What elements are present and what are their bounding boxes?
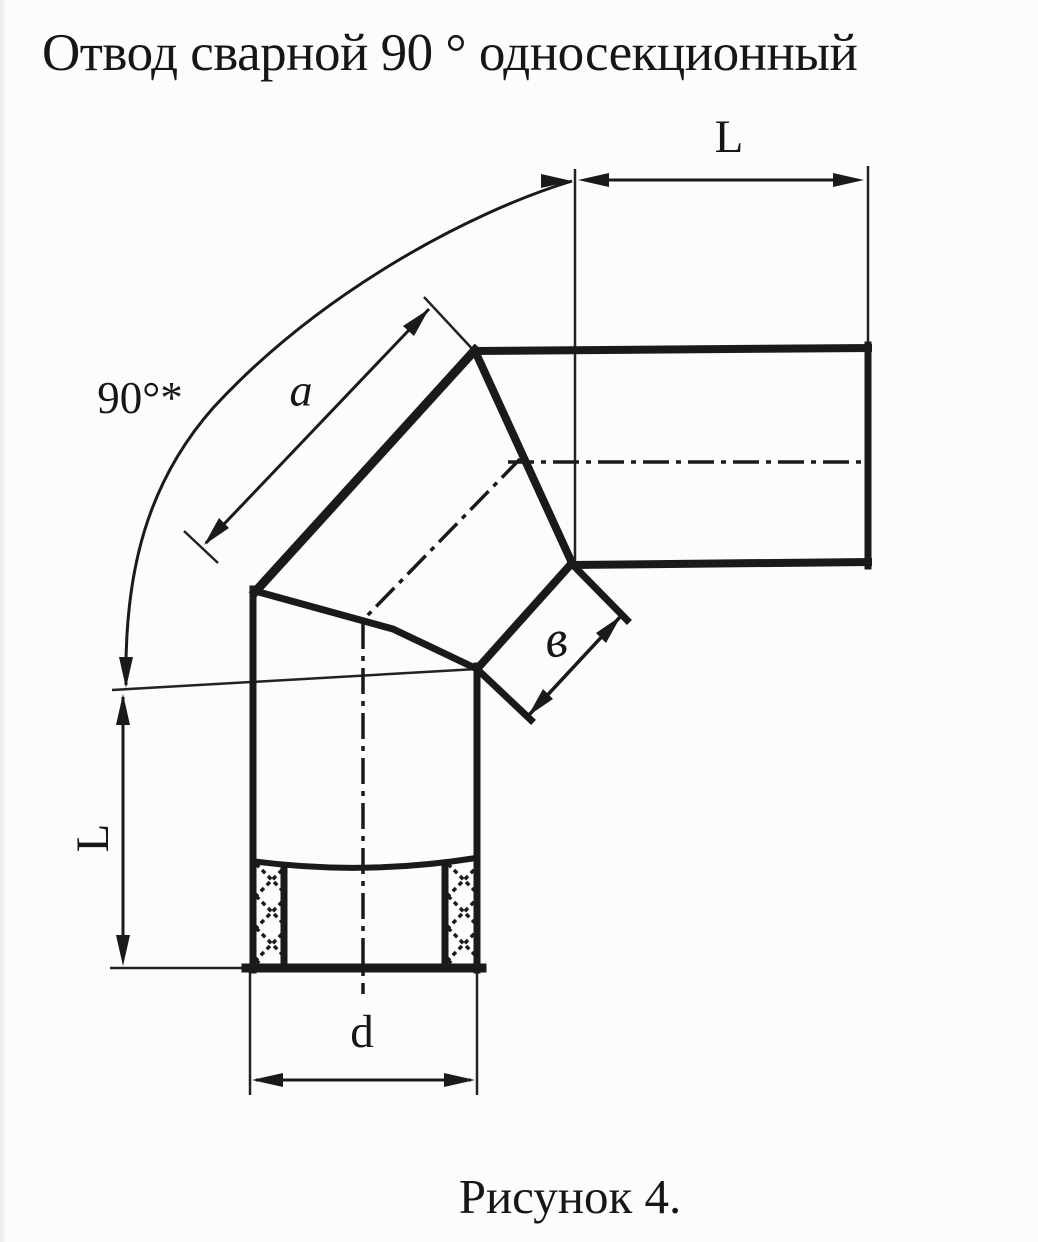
- centerline-diagonal: [362, 459, 520, 621]
- extension-tick-a-upper: [424, 297, 477, 354]
- arrowhead-left: [578, 173, 609, 187]
- arrowhead-top: [116, 694, 130, 725]
- top-pipe-bottom-edge: [571, 562, 868, 565]
- angle-arc: [119, 174, 572, 688]
- dimension-v: [528, 616, 621, 716]
- scanned-figure-page: Отвод сварной 90 ° односекционный: [0, 0, 1038, 1242]
- extension-line-left-upper: [112, 669, 477, 690]
- top-pipe: [475, 345, 868, 566]
- arrowhead-right: [833, 173, 864, 187]
- dimension-line: [206, 309, 429, 543]
- dimension-a: [204, 309, 429, 545]
- section-outer-edge: [255, 350, 475, 592]
- arrowhead-bottom: [119, 657, 133, 688]
- length-label-left: L: [66, 824, 120, 853]
- dimension-L-top: [578, 173, 864, 187]
- section-outer-label: a: [290, 364, 313, 417]
- arrowhead-left: [252, 1073, 283, 1087]
- length-label-top: L: [715, 110, 744, 164]
- angle-label: 90°*: [97, 372, 183, 424]
- inner-face-edge-lower: [477, 669, 531, 720]
- arc-line: [126, 181, 572, 685]
- elbow-technical-drawing: [0, 0, 1038, 1242]
- arrowhead-bottom: [116, 935, 130, 966]
- top-pipe-top-edge: [475, 348, 868, 351]
- centerlines: [362, 459, 868, 994]
- figure-caption: Рисунок 4.: [459, 1168, 682, 1225]
- extension-lines: [110, 166, 868, 1095]
- weld-seam-lower: [255, 591, 477, 669]
- inner-face-edge-upper: [572, 564, 627, 620]
- weld-seam-upper: [475, 351, 572, 563]
- arrowhead-right: [444, 1073, 475, 1087]
- socket-wall-hatch-left: [254, 862, 281, 964]
- diameter-label: d: [350, 1005, 374, 1059]
- socket-wall-hatch-right: [448, 860, 474, 964]
- dimension-d: [252, 1073, 475, 1087]
